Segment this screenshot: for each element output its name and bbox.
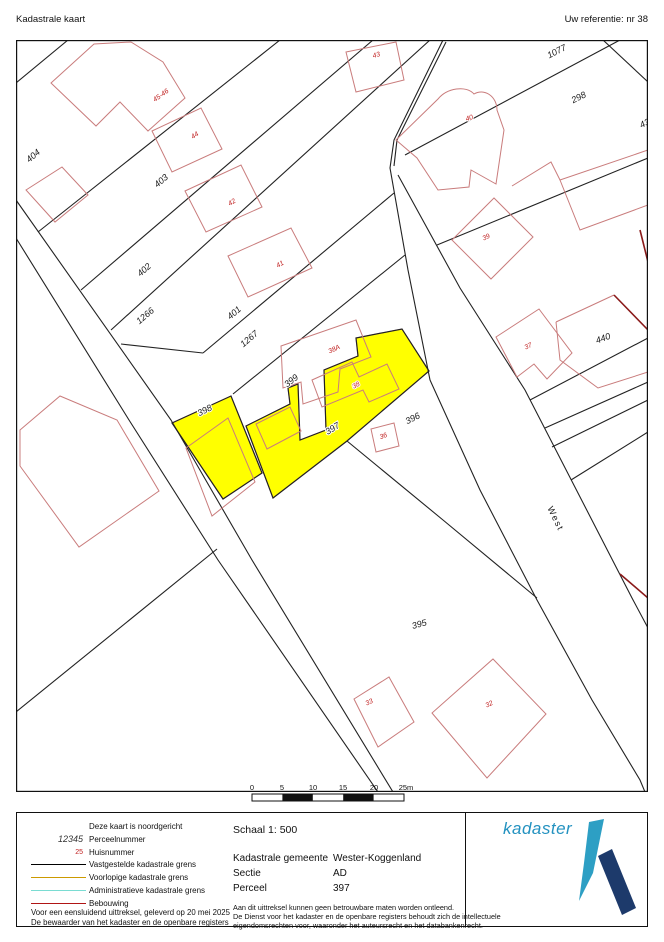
scale-title: Schaal 1: 500 [233,824,297,836]
legend-line-swatch [31,890,86,891]
disclaimer-line: Aan dit uittreksel kunnen geen betrouwba… [233,903,454,912]
legend-line-label: Bebouwing [89,899,129,908]
legend-footer-line: De bewaarder van het kadaster en de open… [31,918,229,927]
parcel-398-highlight [172,396,262,499]
house-label-42: 42 [227,198,237,208]
street-label: West [545,505,566,533]
reference-number: Uw referentie: nr 38 [565,14,648,25]
house-label-41: 41 [275,260,285,270]
north-note: Deze kaart is noordgericht [89,822,182,831]
parcel-label-404: 404 [24,147,42,164]
building-43 [346,42,404,92]
scale-tick-20: 20 [370,783,378,792]
document-title: Kadastrale kaart [16,14,85,25]
house-label-39: 39 [481,233,491,243]
parcel-label-43: 43 [638,117,648,130]
cadastral-map: 4044034021266401126739939839739610772984… [16,40,648,792]
house-label-40: 40 [465,114,475,123]
map-canvas: 4044034021266401126739939839739610772984… [16,40,648,792]
parcel-label-298: 298 [569,89,588,105]
scale-tick-0: 0 [250,783,254,792]
building-33 [354,677,414,747]
scale-bar-labels: 0510152025m [250,783,413,792]
building-left-edge [26,167,88,222]
logo-bar-shape [598,849,636,915]
scale-bar-track [252,794,404,801]
legend-line-label: Vastgestelde kadastrale grens [89,860,196,869]
scale-bar: 0510152025m [230,778,420,808]
parcel-397-highlight [246,329,429,498]
building-right-partial-2 [560,180,648,230]
building-45-46 [51,42,185,131]
house-label-38A: 38A [327,344,341,356]
legend-line-label: Administratieve kadastrale grens [89,886,205,895]
house-label-45-46: 45-46 [152,88,170,104]
house-number-sample: 25 [47,849,83,856]
info-value: Wester-Koggenland [333,853,421,864]
parcel-number-sample: 12345 [47,834,83,844]
house-label-43: 43 [372,51,382,60]
scale-tick-15: 15 [339,783,347,792]
info-value: AD [333,868,347,879]
scale-tick-10: 10 [309,783,317,792]
house-label-44: 44 [190,131,200,141]
parcel-label-1267: 1267 [238,328,261,349]
highlighted-parcels [172,329,429,499]
parcel-label-440: 440 [594,331,612,346]
building-32 [432,659,546,778]
parcel-label-395: 395 [411,617,429,631]
building-west-field [20,396,159,547]
house-number-label: Huisnummer [89,848,134,857]
parcel-label-403: 403 [152,172,170,189]
building-42 [185,165,262,232]
parcel-label-396: 396 [404,410,422,426]
parcel-label-1077: 1077 [545,42,568,60]
scale-bar-segment [343,794,373,801]
building-right-partial-1 [512,150,648,186]
info-label: Sectie [233,868,261,879]
house-label-32: 32 [484,700,494,710]
legend-line-swatch [31,877,86,878]
info-value: 397 [333,883,350,894]
disclaimer-line: eigendomsrechten voor, waaronder het aut… [233,921,483,930]
legend-line-label: Voorlopige kadastrale grens [89,873,188,882]
parcel-label-1266: 1266 [134,305,156,326]
building-41 [228,228,312,297]
house-label-37: 37 [523,342,533,352]
parcel-label-401: 401 [225,304,243,321]
legend-panel: Deze kaart is noordgericht 12345 Perceel… [16,812,648,927]
scale-bar-segment [282,794,312,801]
legend-line-swatch [31,864,86,865]
disclaimer-line: De Dienst voor het kadaster en de openba… [233,912,501,921]
info-label: Perceel [233,883,267,894]
scale-tick-25m: 25m [399,783,414,792]
house-label-33: 33 [364,698,374,708]
parcel-number-label: Perceelnummer [89,835,145,844]
legend-line-swatch [31,903,86,904]
scale-tick-5: 5 [280,783,284,792]
legend-footer-line: Voor een eensluidend uittreksel, gelever… [31,908,230,917]
parcel-label-402: 402 [135,261,153,278]
kadaster-logo-icon [465,813,649,926]
house-label-36: 36 [379,432,389,441]
info-label: Kadastrale gemeente [233,853,328,864]
